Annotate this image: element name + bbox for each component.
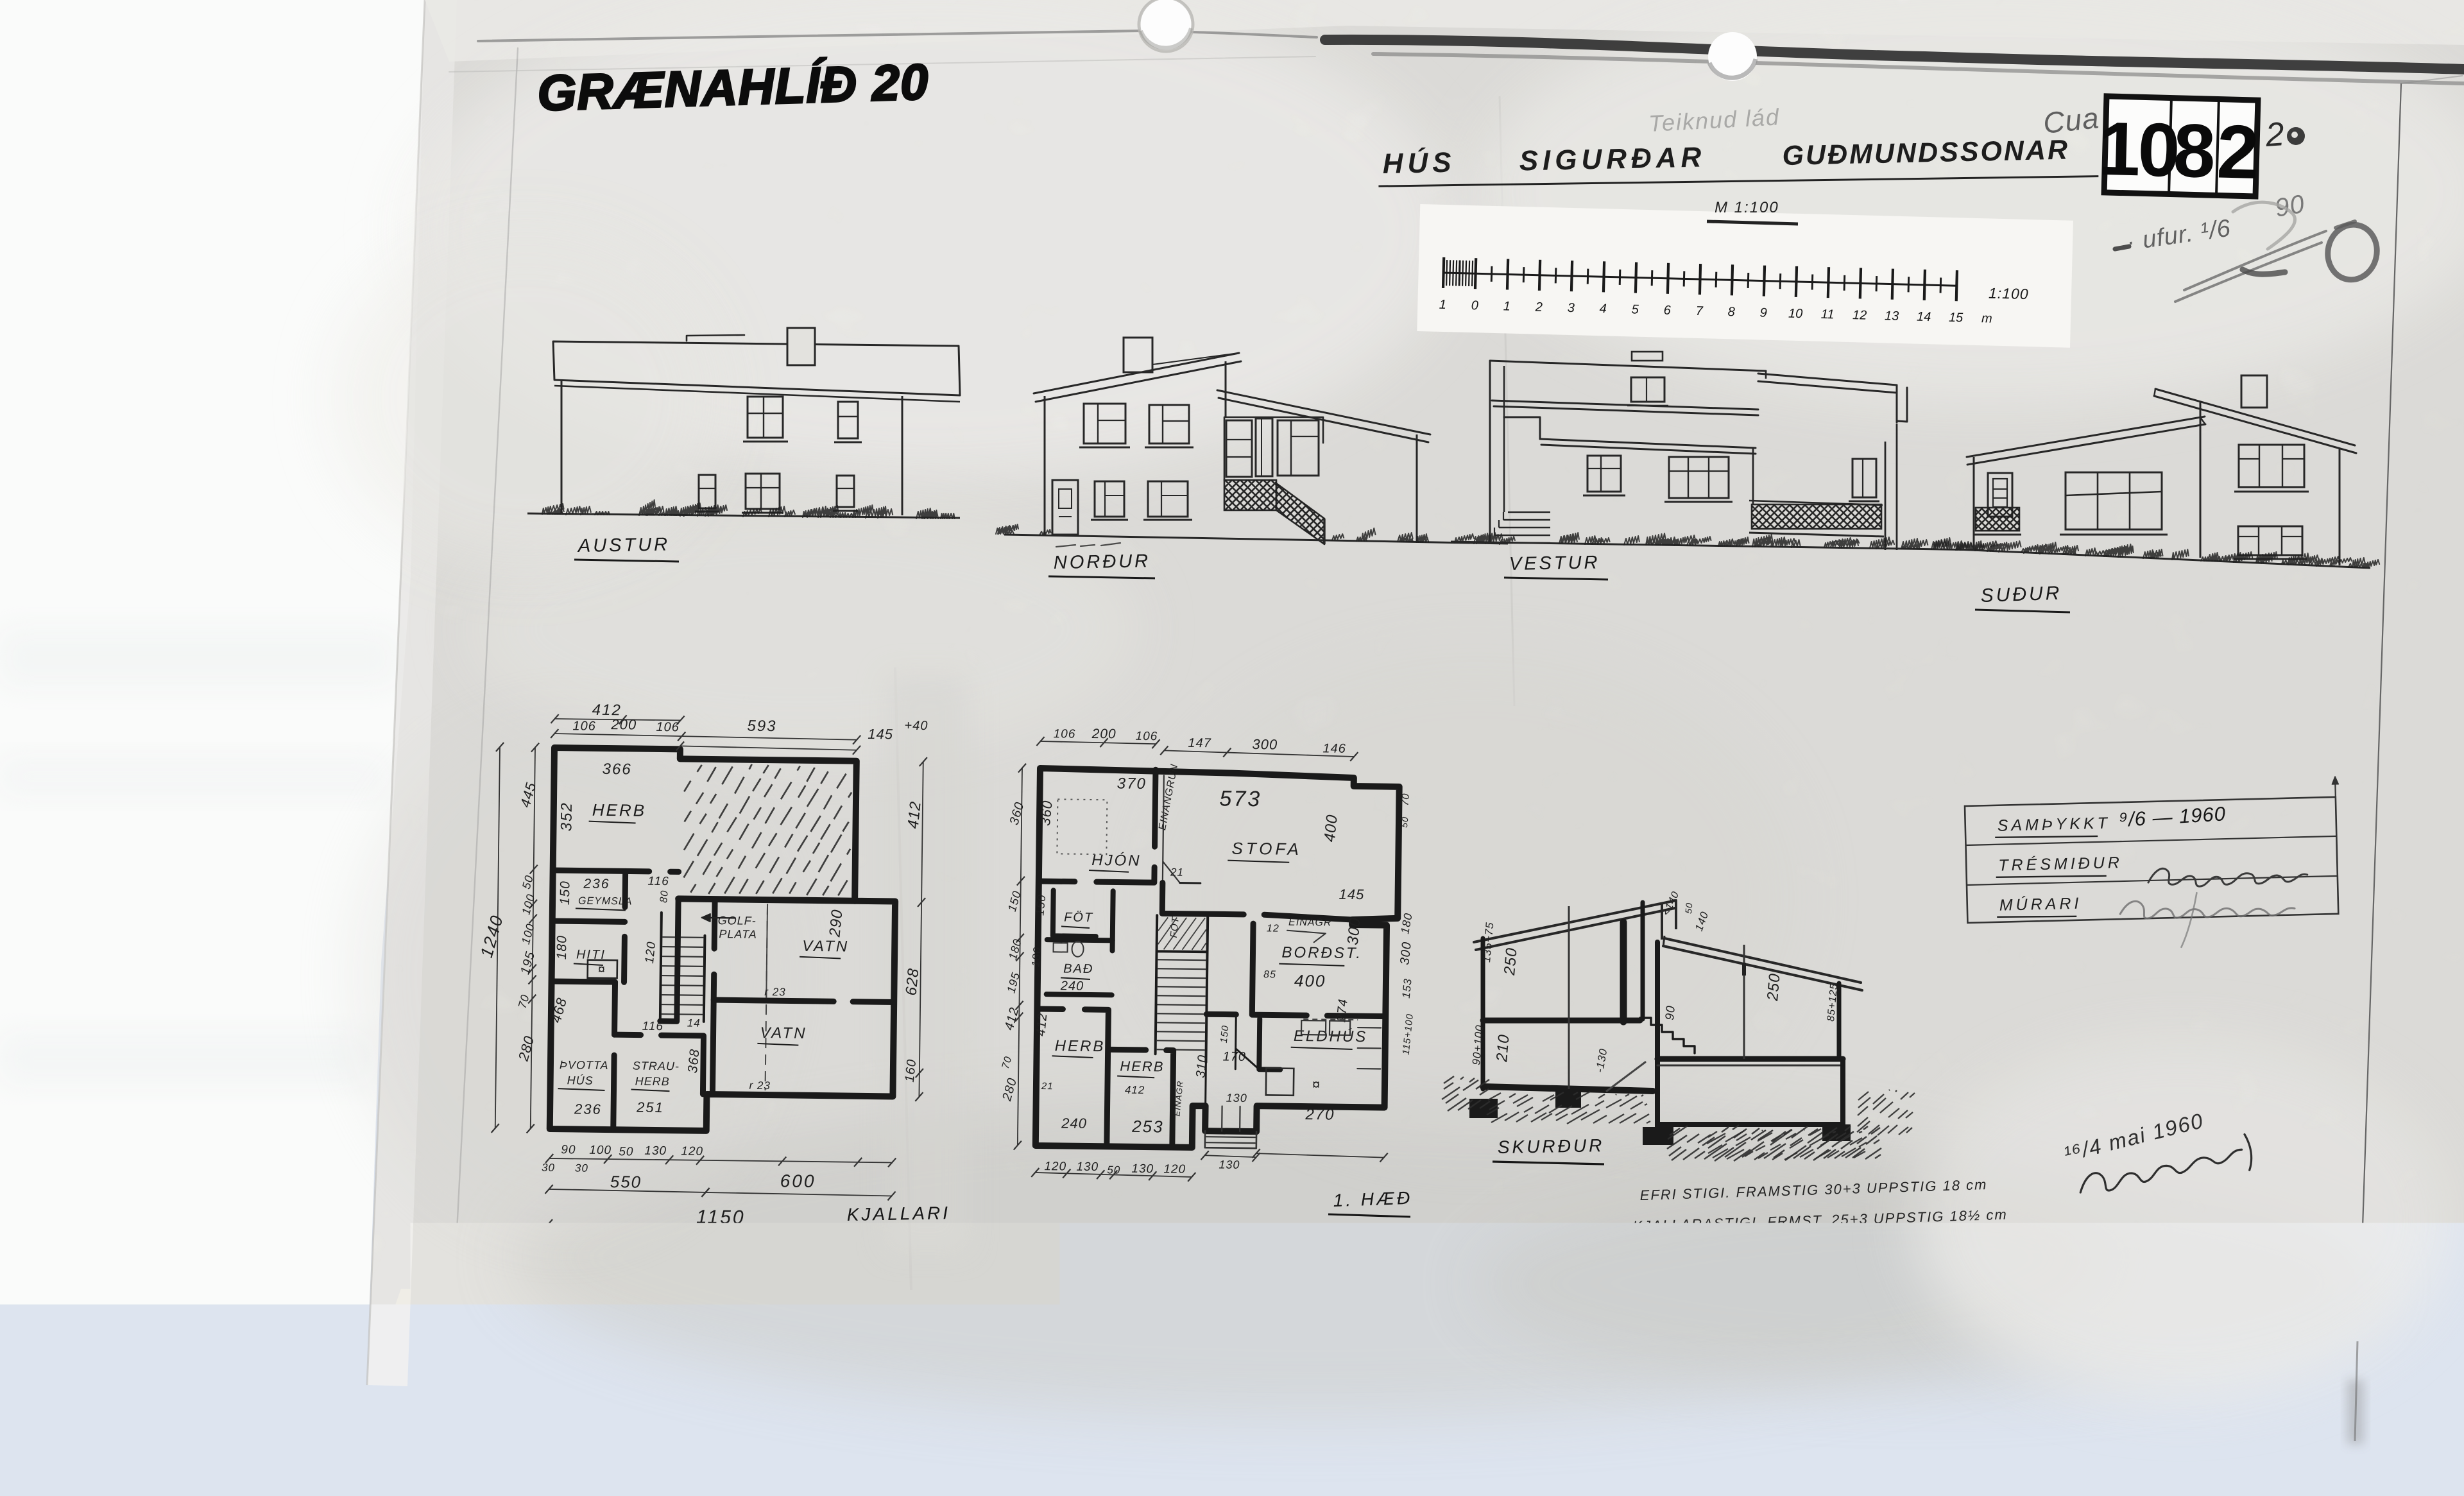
svg-text:120: 120	[1044, 1160, 1066, 1173]
svg-text:7: 7	[1695, 304, 1704, 318]
svg-text:HÚS: HÚS	[1382, 146, 1456, 180]
svg-text:150: 150	[1219, 1024, 1231, 1044]
svg-text:240: 240	[1061, 1115, 1087, 1131]
svg-text:130: 130	[1131, 1162, 1154, 1176]
svg-text:4: 4	[1599, 302, 1607, 316]
svg-text:290: 290	[826, 909, 846, 939]
svg-text:GRÆNAHLÍÐ 20: GRÆNAHLÍÐ 20	[536, 53, 929, 121]
svg-text:VATN: VATN	[802, 938, 849, 956]
svg-text:50: 50	[1107, 1164, 1120, 1176]
svg-text:14: 14	[687, 1017, 701, 1029]
svg-text:BAÐ: BAÐ	[1063, 961, 1093, 976]
svg-text:146: 146	[1322, 741, 1346, 755]
svg-text:253: 253	[1131, 1117, 1164, 1137]
svg-text:SIGURÐAR: SIGURÐAR	[1519, 141, 1706, 176]
svg-text:106: 106	[656, 720, 680, 734]
svg-text:106: 106	[1054, 727, 1076, 741]
svg-text:106: 106	[572, 719, 596, 733]
svg-text:412: 412	[1034, 1012, 1050, 1036]
svg-text:3: 3	[1567, 301, 1575, 315]
svg-text:EINAGR: EINAGR	[1288, 917, 1332, 929]
svg-text:8: 8	[2172, 108, 2216, 194]
svg-text:HERB: HERB	[1055, 1037, 1106, 1055]
svg-text:r 23: r 23	[749, 1079, 771, 1092]
svg-text:400: 400	[1294, 971, 1326, 991]
svg-text:VESTUR: VESTUR	[1509, 553, 1600, 574]
svg-text:412: 412	[905, 800, 925, 830]
svg-text:120: 120	[1163, 1162, 1186, 1176]
svg-text:106: 106	[1135, 730, 1158, 743]
svg-text:270: 270	[1305, 1106, 1335, 1124]
svg-text:13: 13	[1885, 309, 1899, 323]
svg-text:HERB: HERB	[635, 1075, 670, 1088]
svg-text:300: 300	[1344, 916, 1364, 946]
svg-text:¤: ¤	[1312, 1076, 1322, 1092]
svg-text:550: 550	[610, 1172, 642, 1192]
svg-text:r 23: r 23	[764, 986, 786, 998]
svg-text:180: 180	[1029, 946, 1043, 967]
svg-text:412: 412	[1125, 1084, 1145, 1096]
svg-text:SUÐUR: SUÐUR	[1980, 583, 2062, 606]
svg-text:160: 160	[903, 1058, 920, 1083]
svg-text:153: 153	[1400, 977, 1414, 999]
svg-text:80: 80	[658, 890, 671, 903]
svg-text:10: 10	[2097, 107, 2178, 193]
svg-text:MÚRARI: MÚRARI	[1999, 894, 2082, 915]
svg-text:1150: 1150	[696, 1207, 746, 1228]
svg-text:15: 15	[1949, 311, 1964, 325]
svg-text:2: 2	[2264, 116, 2286, 154]
svg-text:366: 366	[602, 761, 631, 778]
svg-text:HERB: HERB	[1120, 1058, 1164, 1075]
svg-text:368: 368	[685, 1048, 703, 1074]
svg-text:90: 90	[1663, 1005, 1678, 1021]
svg-text:90: 90	[561, 1143, 576, 1156]
svg-text:130: 130	[1226, 1092, 1247, 1105]
svg-text:HÚS: HÚS	[567, 1073, 594, 1087]
svg-text:360: 360	[1037, 800, 1056, 827]
svg-text:240: 240	[1060, 979, 1084, 993]
svg-text:0: 0	[1471, 298, 1478, 313]
svg-text:116: 116	[642, 1020, 664, 1033]
svg-text:150: 150	[558, 881, 572, 905]
svg-text:310: 310	[1193, 1054, 1210, 1078]
svg-text:21: 21	[1170, 866, 1184, 878]
svg-text:9: 9	[1759, 305, 1767, 320]
svg-text:14: 14	[1917, 310, 1931, 325]
svg-text:116: 116	[647, 875, 669, 888]
svg-text:85: 85	[1263, 969, 1276, 980]
svg-text:573: 573	[1219, 786, 1262, 811]
svg-text:628: 628	[902, 967, 922, 997]
svg-text:130: 130	[1076, 1160, 1099, 1174]
svg-text:1: 1	[1503, 299, 1510, 313]
svg-text:12: 12	[1267, 923, 1279, 934]
svg-text:+40: +40	[904, 719, 928, 733]
svg-text:M 1:100: M 1:100	[1715, 199, 1779, 216]
svg-text:210: 210	[1493, 1033, 1513, 1063]
svg-text:50: 50	[619, 1145, 633, 1158]
svg-text:ÞVOTTA: ÞVOTTA	[560, 1058, 609, 1072]
svg-text:352: 352	[558, 802, 576, 831]
svg-text:10: 10	[1788, 307, 1803, 322]
svg-text:120: 120	[643, 941, 658, 965]
svg-text:236: 236	[583, 877, 610, 892]
svg-text:1. HÆÐ: 1. HÆÐ	[1333, 1188, 1413, 1210]
svg-text:145: 145	[868, 726, 893, 742]
svg-text:PLATA: PLATA	[719, 927, 757, 941]
svg-text:12: 12	[1852, 308, 1867, 323]
svg-text:VATN: VATN	[760, 1024, 807, 1042]
svg-text:300: 300	[1252, 736, 1278, 752]
svg-text:5: 5	[1631, 302, 1639, 316]
svg-text:236: 236	[574, 1101, 602, 1117]
svg-text:170: 170	[1222, 1050, 1246, 1064]
svg-text:STOFA: STOFA	[1231, 839, 1302, 859]
svg-text:180: 180	[554, 935, 569, 959]
svg-text:250: 250	[1501, 947, 1521, 976]
svg-text:200: 200	[610, 716, 637, 732]
svg-text:BORÐST.: BORÐST.	[1281, 944, 1362, 963]
svg-text:593: 593	[747, 718, 776, 735]
svg-text:FÖT: FÖT	[1064, 910, 1093, 925]
svg-text:130: 130	[644, 1144, 667, 1158]
svg-text:8: 8	[1727, 305, 1735, 319]
svg-text:150: 150	[1033, 894, 1048, 916]
svg-text:300: 300	[1398, 941, 1414, 965]
svg-text:NORÐUR: NORÐUR	[1054, 551, 1151, 573]
svg-text:50: 50	[1399, 816, 1410, 828]
svg-text:145: 145	[1339, 886, 1364, 902]
svg-text:1:100: 1:100	[1989, 284, 2029, 302]
svg-text:HJÓN: HJÓN	[1091, 852, 1142, 870]
svg-text:30: 30	[575, 1162, 588, 1174]
svg-text:21: 21	[1041, 1081, 1054, 1092]
svg-text:HERB: HERB	[592, 800, 647, 820]
svg-text:TRÉSMIÐUR: TRÉSMIÐUR	[1998, 853, 2123, 875]
svg-text:GUÐMUNDSSONAR: GUÐMUNDSSONAR	[1782, 135, 2069, 171]
svg-text:m: m	[1981, 311, 1992, 325]
svg-text:SKURÐUR: SKURÐUR	[1498, 1135, 1605, 1157]
svg-text:KJALLARI: KJALLARI	[847, 1203, 951, 1225]
svg-text:2: 2	[1534, 300, 1543, 314]
svg-text:HITI: HITI	[576, 947, 606, 962]
svg-text:GEYMSLA: GEYMSLA	[578, 895, 633, 907]
svg-text:30: 30	[542, 1162, 555, 1174]
svg-text:120: 120	[681, 1144, 703, 1158]
svg-text:70: 70	[1399, 793, 1412, 806]
svg-text:1: 1	[1439, 298, 1447, 312]
svg-text:251: 251	[636, 1099, 664, 1116]
svg-text:GOLF-: GOLF-	[718, 914, 757, 927]
svg-text:100: 100	[589, 1144, 612, 1157]
svg-text:11: 11	[1820, 307, 1834, 322]
svg-text:2: 2	[2216, 109, 2260, 195]
svg-text:147: 147	[1188, 736, 1211, 750]
svg-text:400: 400	[1321, 814, 1341, 843]
svg-text:ELDHÚS: ELDHÚS	[1294, 1027, 1368, 1045]
svg-text:130: 130	[1219, 1158, 1240, 1171]
svg-text:6: 6	[1663, 304, 1672, 318]
svg-text:200: 200	[1091, 727, 1116, 741]
svg-text:Cua: Cua	[2042, 101, 2101, 140]
svg-text:600: 600	[780, 1171, 816, 1191]
svg-text:50: 50	[1683, 902, 1694, 914]
svg-text:STRAU-: STRAU-	[633, 1060, 680, 1073]
svg-text:370: 370	[1117, 775, 1147, 793]
svg-text:AUSTUR: AUSTUR	[577, 535, 671, 557]
svg-text:SAMÞYKKT: SAMÞYKKT	[1997, 814, 2110, 834]
svg-text:250: 250	[1764, 972, 1784, 1002]
